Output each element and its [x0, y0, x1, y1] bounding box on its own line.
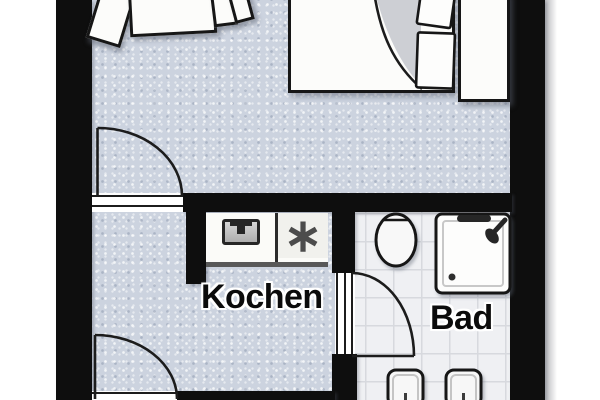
wall-bottom — [177, 391, 335, 400]
wall-bath-lower — [332, 354, 357, 400]
entry-door-threshold — [92, 391, 177, 400]
wall-bath-upper — [332, 212, 355, 273]
bathroom-label: Bad — [430, 301, 493, 335]
side-cabinet — [458, 0, 510, 102]
bedroom-door-threshold — [92, 193, 183, 212]
wall-middle — [183, 193, 512, 212]
kitchen-counter: ∗ — [206, 213, 328, 267]
bath-door-jamb — [335, 273, 355, 354]
jamb-line — [344, 273, 346, 354]
threshold-line — [92, 205, 183, 207]
jamb-line — [336, 273, 338, 354]
stove-icon — [222, 219, 260, 245]
wall-kitchen-stub — [186, 212, 206, 284]
wall-right — [510, 0, 545, 400]
bed — [288, 0, 455, 93]
kitchen-label: Kochen — [201, 280, 323, 314]
sink-icon: ∗ — [278, 213, 328, 258]
wall-shadow — [545, 0, 561, 400]
wall-left — [56, 0, 92, 400]
threshold-line — [92, 392, 177, 394]
jamb-line — [351, 273, 353, 354]
threshold-line — [92, 195, 183, 197]
floor-plan: ∗ — [0, 0, 600, 400]
wardrobe-box — [128, 0, 217, 37]
